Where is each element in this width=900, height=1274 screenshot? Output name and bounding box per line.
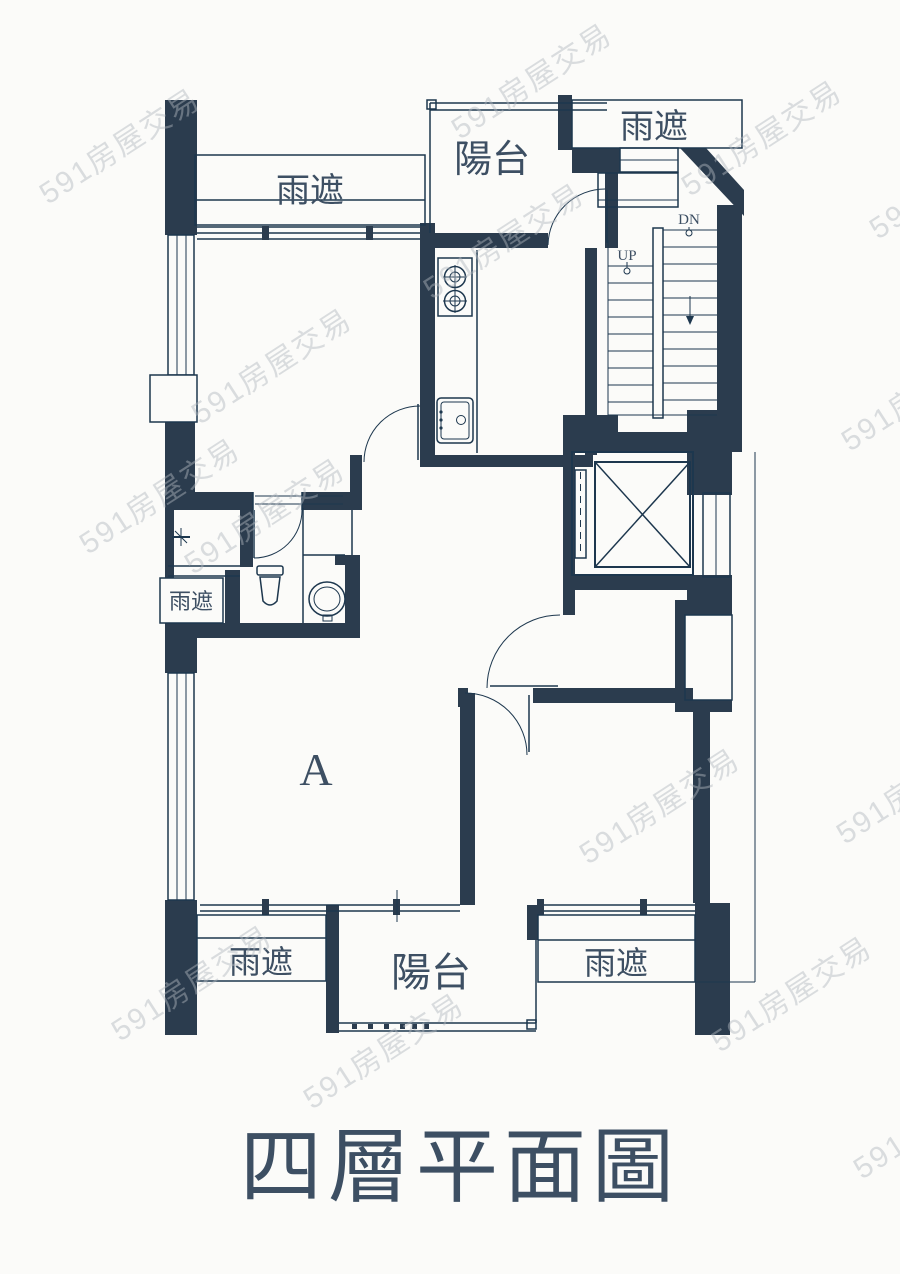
balcony-top-label: 陽台 [454,139,530,181]
kitchen-sink-icon [437,398,473,443]
shaft-hatch-icon [685,615,732,700]
stair-dn-marker [686,230,692,236]
canopy-bottom-right: 雨遮 [538,915,695,982]
toilet-icon [257,566,283,605]
stair-stringer [653,228,663,418]
canopy-mid-left: 雨遮 [160,578,223,623]
stair-up-marker [624,268,630,274]
canopy-bottom-right-label: 雨遮 [584,945,648,981]
stair-direction-arrow [686,296,694,325]
page-title: 四層平面圖 [240,1122,680,1213]
bay-window [150,375,197,422]
stair-up-label: UP [617,248,636,264]
canopy-mid-left-label: 雨遮 [169,589,213,614]
elevator-x-icon [595,462,690,567]
bedroom2-window [537,899,695,915]
door-lobby [487,615,560,688]
bedroom1-window [197,226,420,240]
watermark-text: 591房屋交易 [831,723,900,851]
right-wall-window [703,493,730,577]
watermark-text: 591房屋交易 [446,18,618,146]
watermark-text: 591房屋交易 [186,303,358,431]
left-wall-window-lower [168,673,194,900]
window-break-symbol [172,528,190,546]
floor-plan-canvas: 雨遮 陽台 雨遮 [0,0,900,1274]
wash-basin-icon [309,582,345,621]
canopy-top-left-label: 雨遮 [276,172,344,210]
stair-dn-label: DN [678,212,700,228]
canopy-top-right-label: 雨遮 [620,108,688,146]
watermark-text: 591房屋交易 [574,743,746,871]
stairs: DN UP [608,212,717,418]
watermark-text: 591房屋交易 [298,988,470,1116]
elevator-door [575,470,586,558]
walls [165,95,744,1035]
door-bedroom1 [364,404,420,462]
left-wall-window-upper [150,235,197,422]
watermark-text: 591房屋交易 [848,1058,900,1186]
balcony-bottom-label: 陽台 [391,950,471,995]
canopy-top-left: 雨遮 [195,155,425,225]
watermark-text: 591房屋交易 [706,931,878,1059]
unit-label: A [299,744,332,795]
watermark-text: 591房屋交易 [836,330,900,458]
watermark-text: 591房屋交易 [864,118,900,246]
watermark-text: 591房屋交易 [676,75,848,203]
elevator [572,452,693,575]
